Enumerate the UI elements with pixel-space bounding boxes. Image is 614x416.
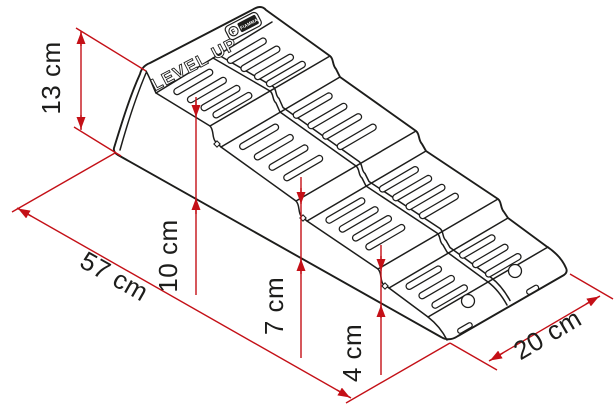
arrow-upright: [586, 297, 599, 305]
extension-line: [570, 274, 613, 299]
arrow-upleft: [18, 209, 31, 217]
extension-line: [12, 153, 115, 212]
arrow-downright: [337, 390, 350, 398]
dim-7-label: 7 cm: [259, 277, 289, 335]
arrow-downleft: [490, 353, 503, 361]
extension-line: [74, 127, 121, 156]
step-hole-left: [462, 295, 475, 308]
diagram-canvas: LEVEL UP F FIAMMA 13 cm 57 cm 10 cm: [0, 0, 614, 416]
dim-20-label: 20 cm: [508, 303, 586, 366]
extension-line: [450, 343, 497, 370]
step-hole-right: [509, 265, 522, 278]
extension-line: [76, 28, 146, 71]
dim-4-label: 4 cm: [337, 324, 367, 382]
dim-57-label: 57 cm: [75, 245, 154, 307]
dim-13-label: 13 cm: [36, 41, 66, 114]
dim-10-label: 10 cm: [153, 219, 183, 292]
level-up-dimension-diagram: LEVEL UP F FIAMMA 13 cm 57 cm 10 cm: [0, 0, 614, 416]
